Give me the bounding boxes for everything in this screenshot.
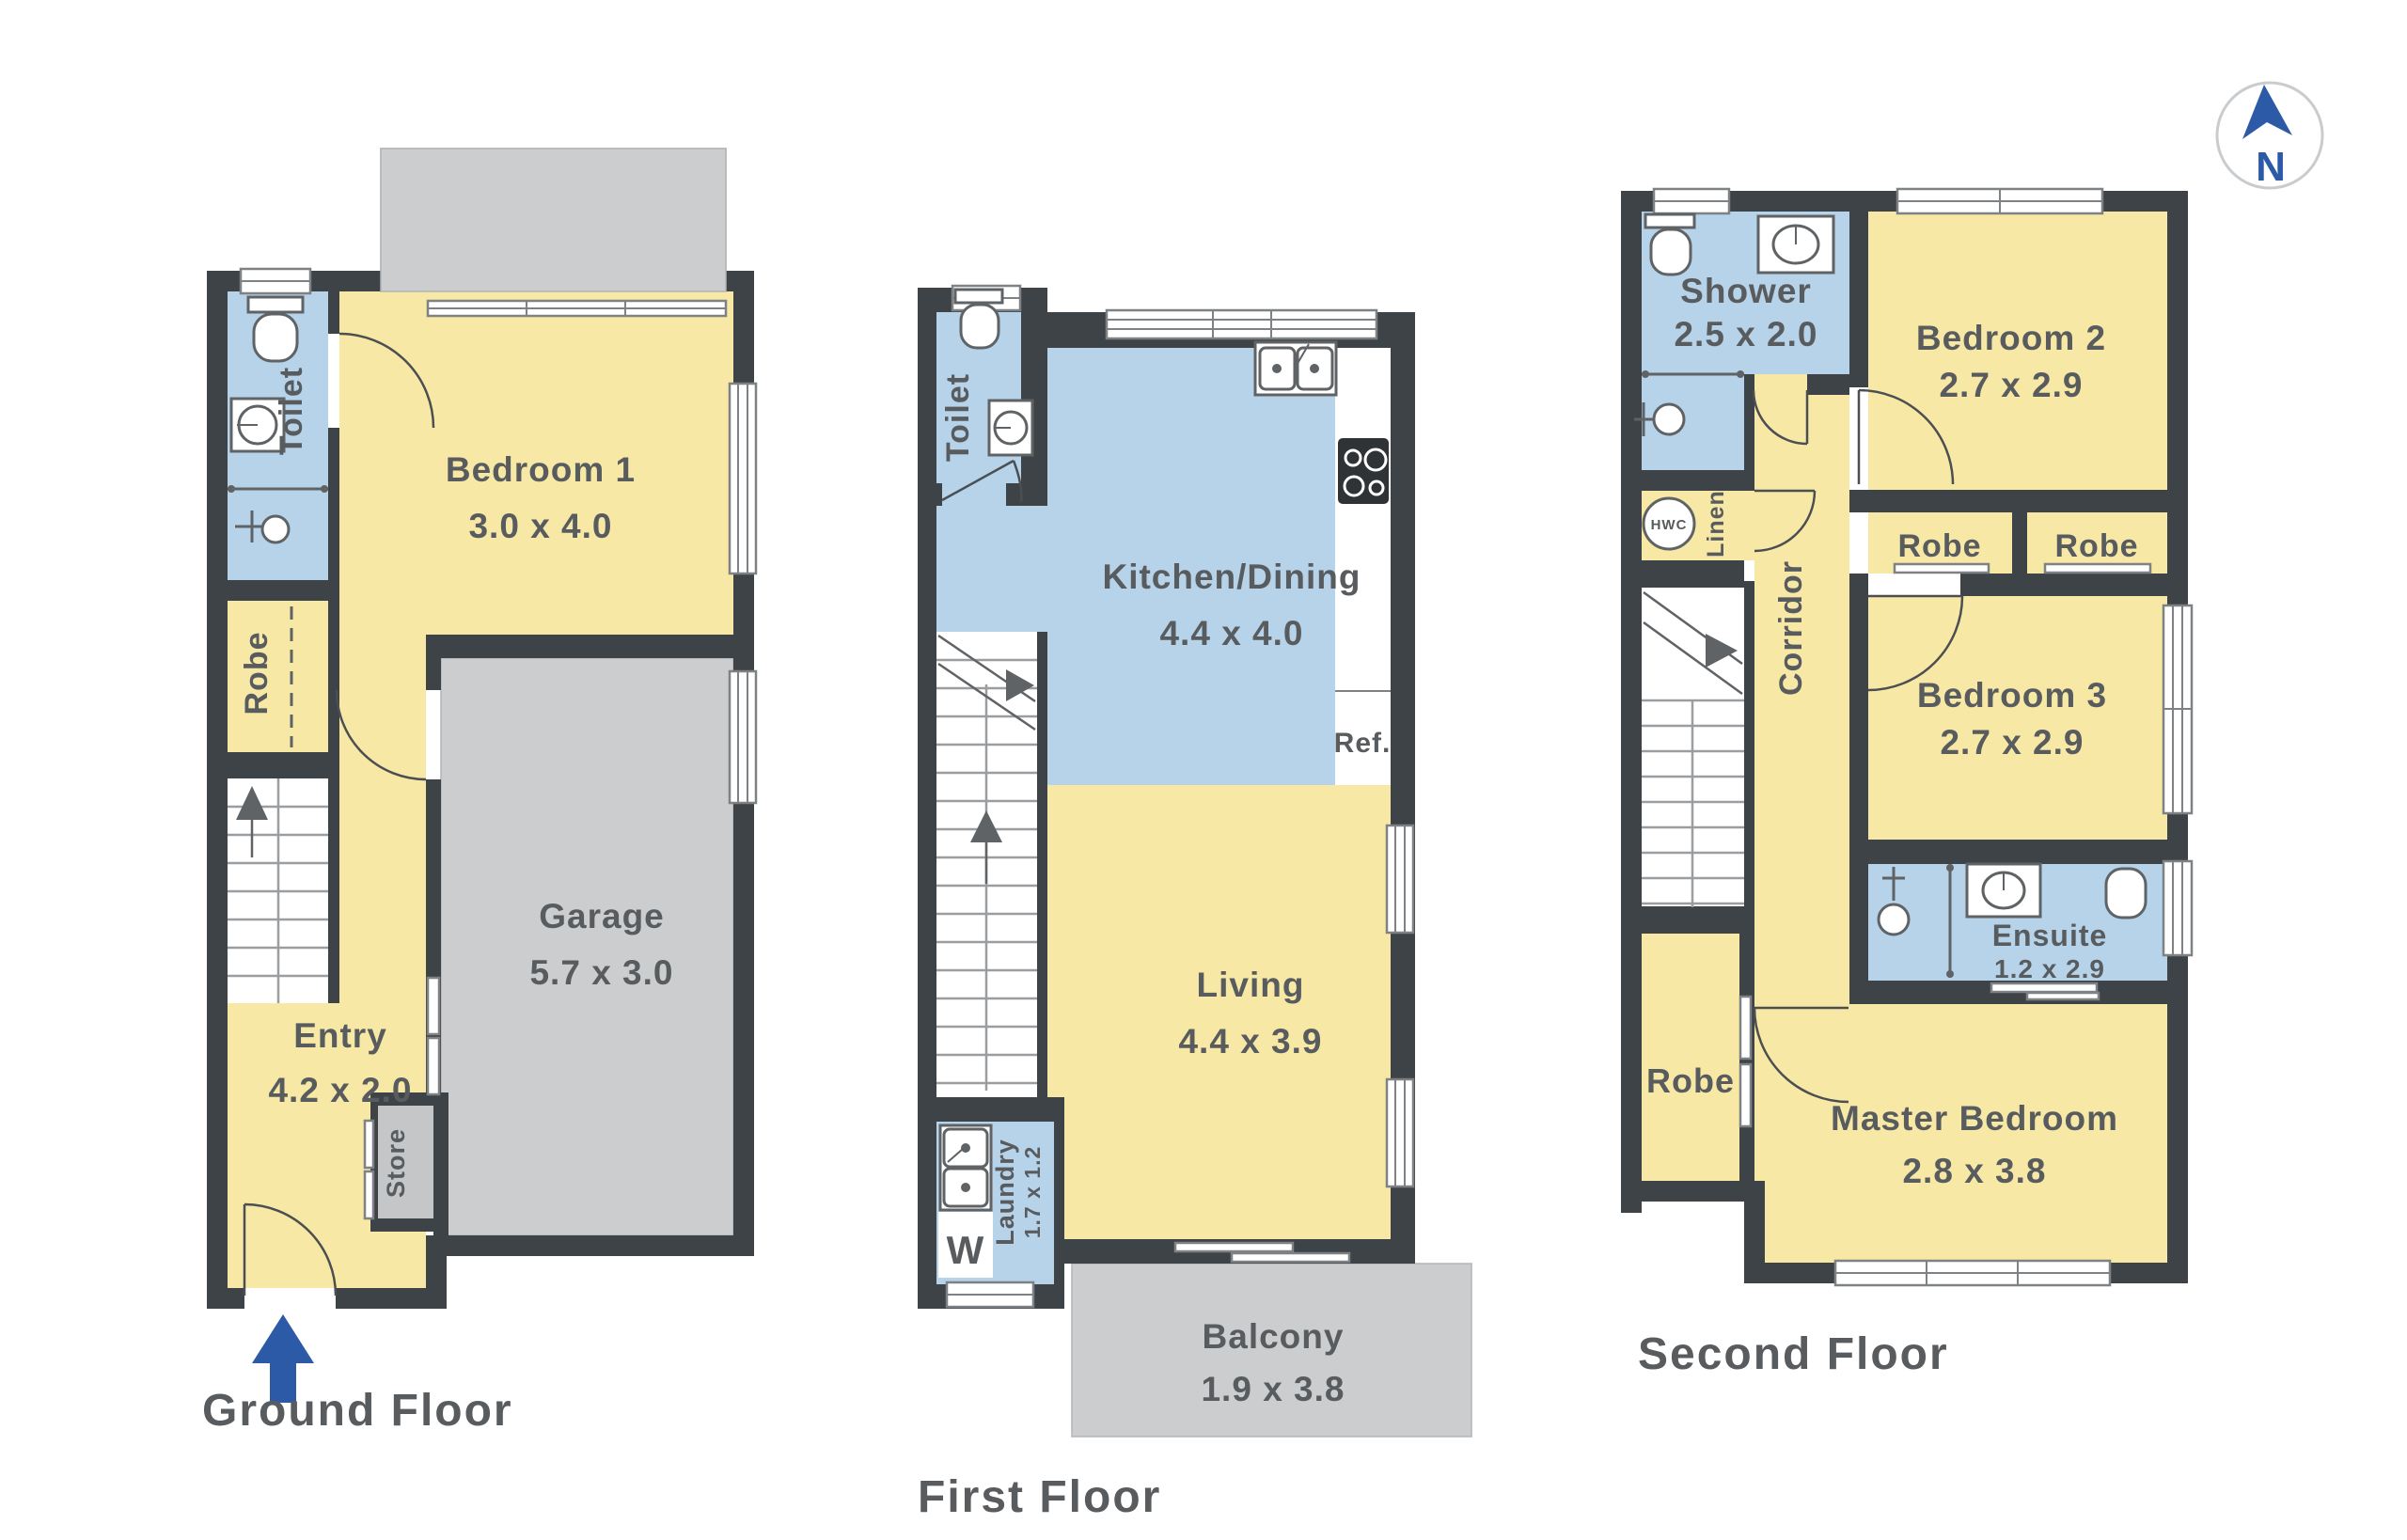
label-kitchen-dims: 4.4 x 4.0 <box>1159 614 1303 652</box>
toilet-cistern-icon <box>248 297 303 312</box>
room-garage <box>441 658 733 1235</box>
label-living: Living <box>1197 966 1305 1004</box>
label-ref: Ref. <box>1334 728 1392 759</box>
label-living-dims: 4.4 x 3.9 <box>1178 1022 1322 1061</box>
label-robe-master: Robe <box>1646 1061 1735 1100</box>
ground-floor-plan: Toilet Bedroom 1 3.0 x 4.0 Robe Garage 5… <box>202 149 756 1436</box>
laundry-tub-icon <box>940 1125 991 1210</box>
label-master-bedroom-dims: 2.8 x 3.8 <box>1902 1152 2046 1190</box>
label-laundry: Laundry <box>991 1139 1019 1246</box>
label-ground-robe: Robe <box>239 632 275 715</box>
driveway-overlay <box>381 149 726 291</box>
label-master-bedroom: Master Bedroom <box>1831 1099 2118 1138</box>
label-robe-bed3: Robe <box>2055 528 2139 564</box>
label-balcony-dims: 1.9 x 3.8 <box>1201 1370 1345 1408</box>
room-master-robe <box>1642 934 1739 1181</box>
label-bedroom-3-dims: 2.7 x 2.9 <box>1940 723 2084 762</box>
label-hwc: HWC <box>1651 517 1688 533</box>
label-corridor: Corridor <box>1773 560 1809 696</box>
toilet-cistern-icon <box>955 290 1002 303</box>
label-first-toilet: Toilet <box>940 373 976 462</box>
second-floor-title: Second Floor <box>1638 1329 1949 1379</box>
label-shower: Shower <box>1680 272 1812 310</box>
second-floor-plan: HWC Shower 2.5 <box>1621 189 2192 1379</box>
toilet-bowl-icon <box>254 314 297 361</box>
label-balcony: Balcony <box>1203 1317 1345 1356</box>
label-store: Store <box>382 1128 410 1198</box>
room-living <box>1047 785 1391 1239</box>
floorplan-canvas: Toilet Bedroom 1 3.0 x 4.0 Robe Garage 5… <box>0 0 2407 1540</box>
label-kitchen: Kitchen/Dining <box>1102 558 1361 596</box>
label-entry-dims: 4.2 x 2.0 <box>268 1071 412 1109</box>
kitchen-sink-icon <box>1255 342 1336 395</box>
label-robe-bed2: Robe <box>1898 528 1982 564</box>
toilet-bowl-icon <box>2106 869 2146 918</box>
room-bedroom-3 <box>1868 596 2167 840</box>
ground-floor-title: Ground Floor <box>202 1386 513 1436</box>
toilet-bowl-icon <box>1651 229 1691 275</box>
label-ensuite-dims: 1.2 x 2.9 <box>1994 954 2105 983</box>
label-ground-toilet: Toilet <box>274 367 309 455</box>
first-landing <box>936 498 1047 632</box>
label-bedroom-1: Bedroom 1 <box>446 450 636 489</box>
north-compass: N <box>2217 83 2322 190</box>
label-shower-dims: 2.5 x 2.0 <box>1674 315 1817 354</box>
kitchen-bench <box>1335 348 1391 691</box>
first-floor-title: First Floor <box>918 1472 1161 1522</box>
label-laundry-dims: 1.7 x 1.2 <box>1020 1146 1045 1239</box>
label-garage: Garage <box>539 897 665 935</box>
label-entry: Entry <box>293 1016 387 1055</box>
label-north: N <box>2256 144 2286 190</box>
label-bedroom-3: Bedroom 3 <box>1917 676 2107 715</box>
toilet-cistern-icon <box>1645 214 1694 228</box>
first-floor-plan: Toilet Kitchen/Dining 4.4 x 4.0 Ref. Liv… <box>918 286 1471 1522</box>
label-bedroom-2: Bedroom 2 <box>1916 319 2106 357</box>
cooktop-icon <box>1338 438 1389 504</box>
label-ensuite: Ensuite <box>1992 919 2108 952</box>
toilet-bowl-icon <box>961 305 999 348</box>
label-garage-dims: 5.7 x 3.0 <box>529 953 673 992</box>
label-washer: W <box>947 1228 985 1272</box>
label-linen: Linen <box>1703 490 1729 558</box>
label-bedroom-2-dims: 2.7 x 2.9 <box>1939 366 2083 404</box>
label-bedroom-1-dims: 3.0 x 4.0 <box>468 507 612 545</box>
